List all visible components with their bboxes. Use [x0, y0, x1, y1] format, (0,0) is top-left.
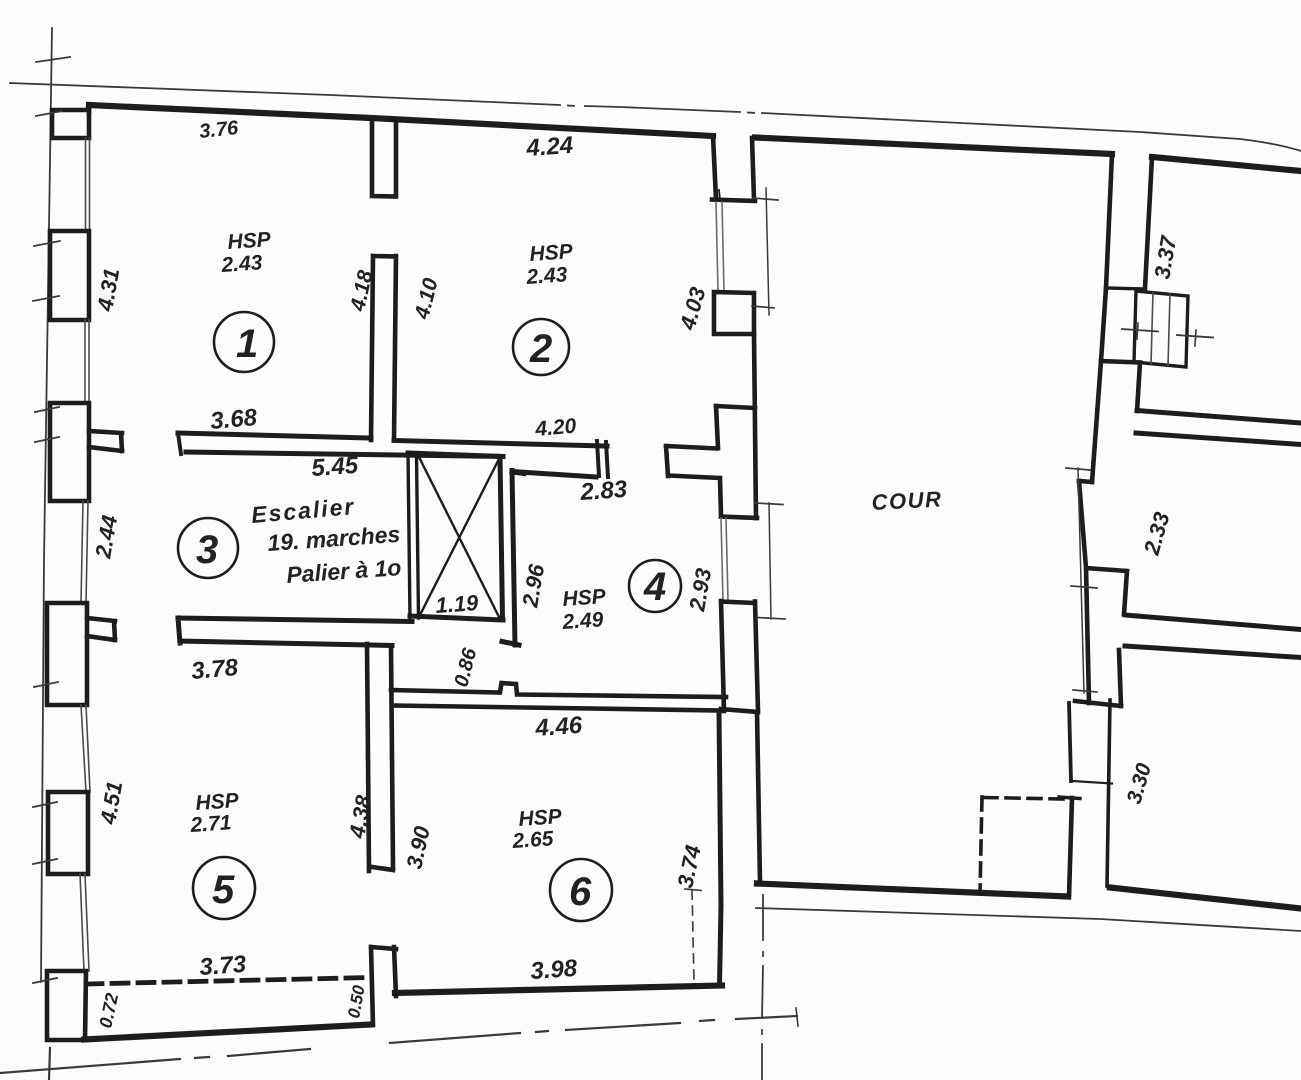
svg-text:1.19: 1.19 [435, 590, 480, 618]
svg-text:4.38: 4.38 [344, 793, 376, 841]
svg-text:2.65: 2.65 [511, 827, 555, 853]
svg-text:0.50: 0.50 [344, 983, 369, 1019]
svg-text:HSP: HSP [195, 789, 241, 815]
svg-text:HSP: HSP [529, 240, 575, 266]
svg-text:2.83: 2.83 [579, 476, 629, 506]
svg-text:4.20: 4.20 [533, 414, 577, 441]
svg-text:3.74: 3.74 [672, 843, 705, 890]
svg-text:2.43: 2.43 [525, 263, 569, 289]
svg-text:0.86: 0.86 [451, 645, 482, 689]
svg-text:2.71: 2.71 [189, 811, 232, 837]
svg-text:2.49: 2.49 [561, 608, 605, 634]
svg-text:4: 4 [643, 565, 666, 609]
svg-text:4.31: 4.31 [92, 266, 124, 314]
svg-text:3.30: 3.30 [1123, 760, 1156, 806]
svg-text:4.03: 4.03 [674, 284, 710, 333]
svg-text:5.45: 5.45 [311, 452, 360, 482]
svg-text:19. marches: 19. marches [267, 521, 401, 556]
svg-text:3.68: 3.68 [209, 404, 259, 435]
svg-text:3.76: 3.76 [198, 117, 240, 143]
svg-text:4.46: 4.46 [534, 712, 584, 742]
svg-text:5: 5 [212, 868, 235, 912]
svg-text:1: 1 [236, 322, 258, 366]
svg-text:0.72: 0.72 [95, 991, 122, 1029]
svg-text:2.33: 2.33 [1138, 509, 1174, 558]
svg-text:Escalier: Escalier [250, 493, 356, 528]
svg-text:3.98: 3.98 [530, 955, 579, 985]
svg-text:4.51: 4.51 [95, 779, 127, 827]
svg-text:Palier à 1o: Palier à 1o [286, 554, 403, 588]
svg-text:3.78: 3.78 [190, 654, 240, 685]
svg-text:HSP: HSP [227, 228, 273, 254]
svg-text:3: 3 [196, 528, 218, 572]
svg-text:2.43: 2.43 [220, 251, 264, 277]
svg-text:2.93: 2.93 [684, 566, 716, 614]
svg-text:3.90: 3.90 [401, 823, 435, 871]
svg-text:3.37: 3.37 [1149, 233, 1181, 281]
svg-text:6: 6 [569, 870, 592, 914]
svg-text:COUR: COUR [871, 486, 943, 515]
svg-text:2: 2 [529, 327, 552, 371]
svg-text:4.10: 4.10 [410, 276, 443, 323]
svg-text:HSP: HSP [562, 585, 608, 611]
svg-text:2.96: 2.96 [517, 562, 549, 610]
svg-text:3.73: 3.73 [199, 951, 248, 981]
svg-text:2.44: 2.44 [90, 513, 122, 561]
svg-text:4.24: 4.24 [525, 132, 574, 162]
